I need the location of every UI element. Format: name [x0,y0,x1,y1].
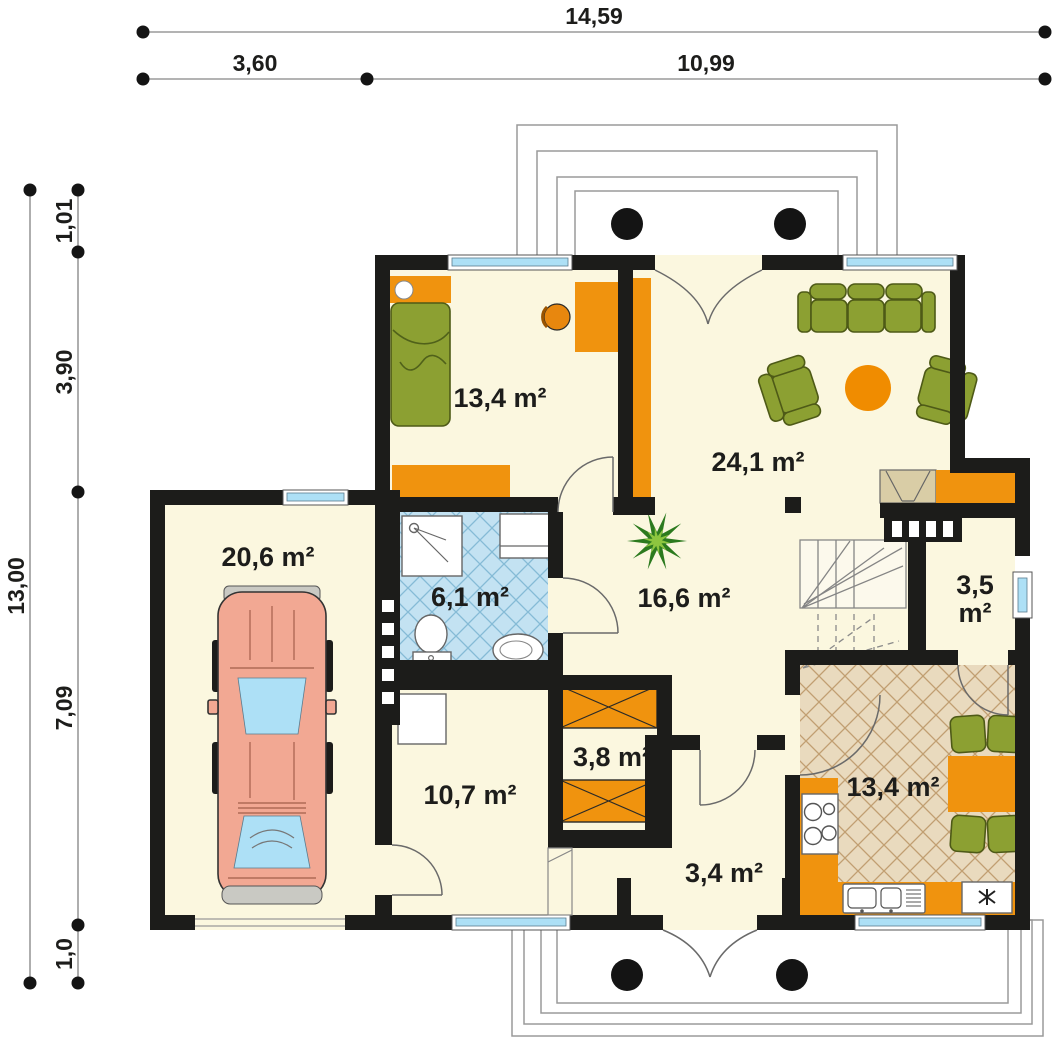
dim-middle-depth: 7,09 [51,686,77,731]
vestibule-partition [548,848,572,915]
shower-icon [402,516,462,576]
tv-sideboard-icon [880,470,1015,503]
dining-chair-icon [950,715,986,753]
bed-icon [389,276,451,426]
floor-plan-page: 14,59 3,60 10,99 13,00 1,01 3,90 7,09 1,… [0,0,1056,1048]
sofa-icon [798,284,935,332]
porch-column-icon [774,208,806,240]
room-label-garage: 20,6 m² [221,542,314,572]
room-label-kitchen: 13,4 m² [846,772,939,802]
dim-porch-depth: 1,01 [51,198,77,243]
room-label-vestibule: 3,4 m² [685,858,763,888]
washbasin-icon [500,514,554,558]
porch-column-icon [611,208,643,240]
porch-column-icon [611,959,643,991]
dining-chair-icon [950,815,986,853]
dim-top-depth: 3,90 [51,350,77,395]
wardrobe-icon [392,465,510,497]
cooktop-icon [802,794,838,854]
window-garage [283,490,348,505]
room-label-hall: 16,6 m² [637,583,730,613]
dim-bottom-depth: 1,0 [51,938,77,970]
car-icon [208,586,336,904]
dim-right-width: 10,99 [677,50,735,76]
dining-set [948,715,1023,853]
kitchen-sink-icon [843,884,925,913]
window-bedroom [448,255,572,270]
dim-left-width: 3,60 [233,50,278,76]
dining-table-icon [948,756,1015,812]
window-utility [452,915,570,930]
room-label-wardrobe: 3,8 m² [573,742,651,772]
room-label-living: 24,1 m² [711,447,804,477]
dim-total-width: 14,59 [565,3,623,29]
porch-column-icon [776,959,808,991]
room-label-bathroom: 6,1 m² [431,582,509,612]
floor-plan-drawing: 14,59 3,60 10,99 13,00 1,01 3,90 7,09 1,… [0,0,1056,1048]
window-kitchen [855,915,985,930]
coffee-table-icon [845,365,891,411]
washing-machine-icon [398,694,446,744]
room-label-utility: 10,7 m² [423,780,516,810]
fridge-icon [962,882,1012,913]
wardrobe-icon [633,278,651,497]
dim-total-depth: 13,00 [3,557,29,615]
room-label-bedroom: 13,4 m² [453,383,546,413]
room-label-pantry-unit: m² [959,598,992,628]
window-living [843,255,957,270]
room-label-pantry-value: 3,5 [956,570,994,600]
window-pantry [1013,572,1032,618]
